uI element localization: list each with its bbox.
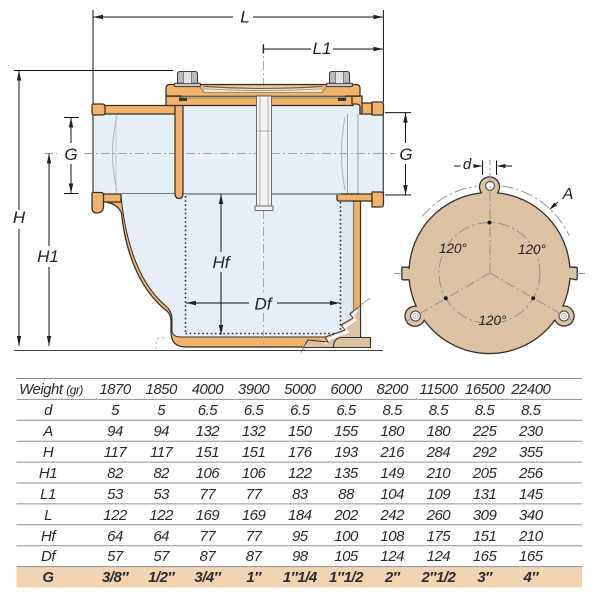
svg-text:106: 106 xyxy=(196,465,221,482)
svg-text:H1: H1 xyxy=(37,247,59,266)
svg-text:8.5: 8.5 xyxy=(429,402,450,419)
svg-text:176: 176 xyxy=(288,444,313,461)
svg-text:5: 5 xyxy=(157,402,166,419)
svg-text:193: 193 xyxy=(334,444,359,461)
svg-text:L1: L1 xyxy=(313,39,332,58)
svg-text:225: 225 xyxy=(472,423,498,440)
svg-text:77: 77 xyxy=(246,528,263,545)
svg-text:117: 117 xyxy=(150,444,174,461)
svg-text:8.5: 8.5 xyxy=(383,402,404,419)
svg-text:6.5: 6.5 xyxy=(198,402,219,419)
svg-text:117: 117 xyxy=(104,444,128,461)
svg-text:53: 53 xyxy=(107,486,124,503)
svg-text:1″1/4: 1″1/4 xyxy=(283,569,318,586)
svg-text:105: 105 xyxy=(334,548,359,565)
svg-text:205: 205 xyxy=(472,465,498,482)
svg-text:8.5: 8.5 xyxy=(521,402,542,419)
svg-text:151: 151 xyxy=(242,444,266,461)
svg-text:6.5: 6.5 xyxy=(244,402,265,419)
svg-text:77: 77 xyxy=(200,528,217,545)
svg-text:Hf: Hf xyxy=(213,253,232,272)
svg-text:4000: 4000 xyxy=(192,381,225,398)
svg-text:L: L xyxy=(240,8,249,27)
svg-text:d: d xyxy=(463,156,472,173)
svg-text:6.5: 6.5 xyxy=(290,402,311,419)
svg-text:11500: 11500 xyxy=(419,381,458,398)
svg-text:242: 242 xyxy=(379,507,405,524)
svg-text:100: 100 xyxy=(334,528,359,545)
svg-text:124: 124 xyxy=(427,548,451,565)
svg-text:94: 94 xyxy=(153,423,169,440)
svg-text:340: 340 xyxy=(519,507,544,524)
svg-text:77: 77 xyxy=(200,486,217,503)
svg-text:87: 87 xyxy=(246,548,263,565)
svg-text:22400: 22400 xyxy=(510,381,551,398)
svg-text:180: 180 xyxy=(380,423,405,440)
svg-text:2″1/2: 2″1/2 xyxy=(420,569,456,586)
svg-text:d: d xyxy=(44,402,53,419)
svg-text:H: H xyxy=(13,208,26,227)
svg-text:L: L xyxy=(44,507,52,524)
svg-text:16500: 16500 xyxy=(465,381,505,398)
svg-text:87: 87 xyxy=(200,548,217,565)
svg-text:230: 230 xyxy=(518,423,544,440)
svg-text:64: 64 xyxy=(107,528,123,545)
svg-text:151: 151 xyxy=(473,528,497,545)
svg-text:5000: 5000 xyxy=(284,381,317,398)
svg-text:131: 131 xyxy=(473,486,497,503)
svg-text:6000: 6000 xyxy=(330,381,363,398)
svg-text:L1: L1 xyxy=(40,486,56,503)
svg-text:1″: 1″ xyxy=(246,569,262,586)
svg-text:169: 169 xyxy=(196,507,221,524)
svg-text:184: 184 xyxy=(288,507,312,524)
svg-text:120°: 120° xyxy=(518,242,547,257)
svg-text:G: G xyxy=(64,145,77,164)
svg-text:284: 284 xyxy=(426,444,451,461)
svg-text:175: 175 xyxy=(427,528,452,545)
svg-text:H: H xyxy=(43,444,54,461)
svg-text:53: 53 xyxy=(153,486,170,503)
svg-text:124: 124 xyxy=(380,548,404,565)
svg-text:4″: 4″ xyxy=(523,569,540,586)
svg-text:Weight (gr): Weight (gr) xyxy=(19,381,83,398)
svg-text:H1: H1 xyxy=(39,465,57,482)
svg-text:150: 150 xyxy=(288,423,313,440)
svg-text:165: 165 xyxy=(473,548,498,565)
svg-text:82: 82 xyxy=(153,465,170,482)
svg-text:210: 210 xyxy=(426,465,452,482)
svg-text:3/4″: 3/4″ xyxy=(194,569,221,586)
svg-text:1″1/2: 1″1/2 xyxy=(329,569,364,586)
svg-text:109: 109 xyxy=(427,486,452,503)
svg-text:122: 122 xyxy=(103,507,128,524)
svg-text:88: 88 xyxy=(338,486,355,503)
svg-text:57: 57 xyxy=(153,548,170,565)
svg-text:Hf: Hf xyxy=(41,528,57,545)
svg-text:5: 5 xyxy=(111,402,120,419)
svg-text:169: 169 xyxy=(242,507,267,524)
svg-text:A: A xyxy=(562,186,574,203)
svg-text:132: 132 xyxy=(196,423,221,440)
svg-text:165: 165 xyxy=(519,548,544,565)
svg-text:106: 106 xyxy=(242,465,267,482)
svg-text:8200: 8200 xyxy=(377,381,410,398)
svg-text:83: 83 xyxy=(292,486,309,503)
svg-text:122: 122 xyxy=(149,507,174,524)
svg-text:64: 64 xyxy=(153,528,169,545)
svg-text:Df: Df xyxy=(41,548,57,565)
svg-text:216: 216 xyxy=(379,444,405,461)
svg-text:145: 145 xyxy=(519,486,544,503)
svg-text:135: 135 xyxy=(334,465,359,482)
svg-text:260: 260 xyxy=(426,507,452,524)
svg-text:A: A xyxy=(42,423,53,440)
svg-text:3900: 3900 xyxy=(238,381,271,398)
svg-text:355: 355 xyxy=(519,444,544,461)
svg-text:292: 292 xyxy=(472,444,498,461)
svg-text:82: 82 xyxy=(107,465,124,482)
svg-text:94: 94 xyxy=(107,423,123,440)
svg-text:202: 202 xyxy=(333,507,359,524)
svg-text:1850: 1850 xyxy=(146,381,179,398)
svg-text:Df: Df xyxy=(255,295,274,314)
svg-text:120°: 120° xyxy=(439,241,468,256)
svg-text:G: G xyxy=(42,569,54,586)
svg-text:G: G xyxy=(399,145,412,164)
svg-text:120°: 120° xyxy=(479,313,508,328)
svg-text:8.5: 8.5 xyxy=(475,402,496,419)
svg-text:122: 122 xyxy=(288,465,313,482)
svg-text:1870: 1870 xyxy=(99,381,132,398)
svg-text:57: 57 xyxy=(107,548,124,565)
svg-text:3/8″: 3/8″ xyxy=(102,569,129,586)
svg-text:151: 151 xyxy=(196,444,220,461)
svg-text:77: 77 xyxy=(246,486,263,503)
svg-text:98: 98 xyxy=(292,548,309,565)
svg-text:256: 256 xyxy=(518,465,544,482)
svg-text:2″: 2″ xyxy=(384,569,401,586)
svg-text:104: 104 xyxy=(380,486,404,503)
svg-text:6.5: 6.5 xyxy=(336,402,357,419)
svg-text:210: 210 xyxy=(518,528,544,545)
svg-text:309: 309 xyxy=(473,507,498,524)
svg-text:108: 108 xyxy=(380,528,405,545)
svg-text:149: 149 xyxy=(380,465,405,482)
svg-text:1/2″: 1/2″ xyxy=(148,569,175,586)
svg-text:95: 95 xyxy=(292,528,309,545)
svg-text:132: 132 xyxy=(242,423,267,440)
svg-text:180: 180 xyxy=(427,423,452,440)
svg-text:155: 155 xyxy=(334,423,359,440)
svg-text:3″: 3″ xyxy=(477,569,493,586)
